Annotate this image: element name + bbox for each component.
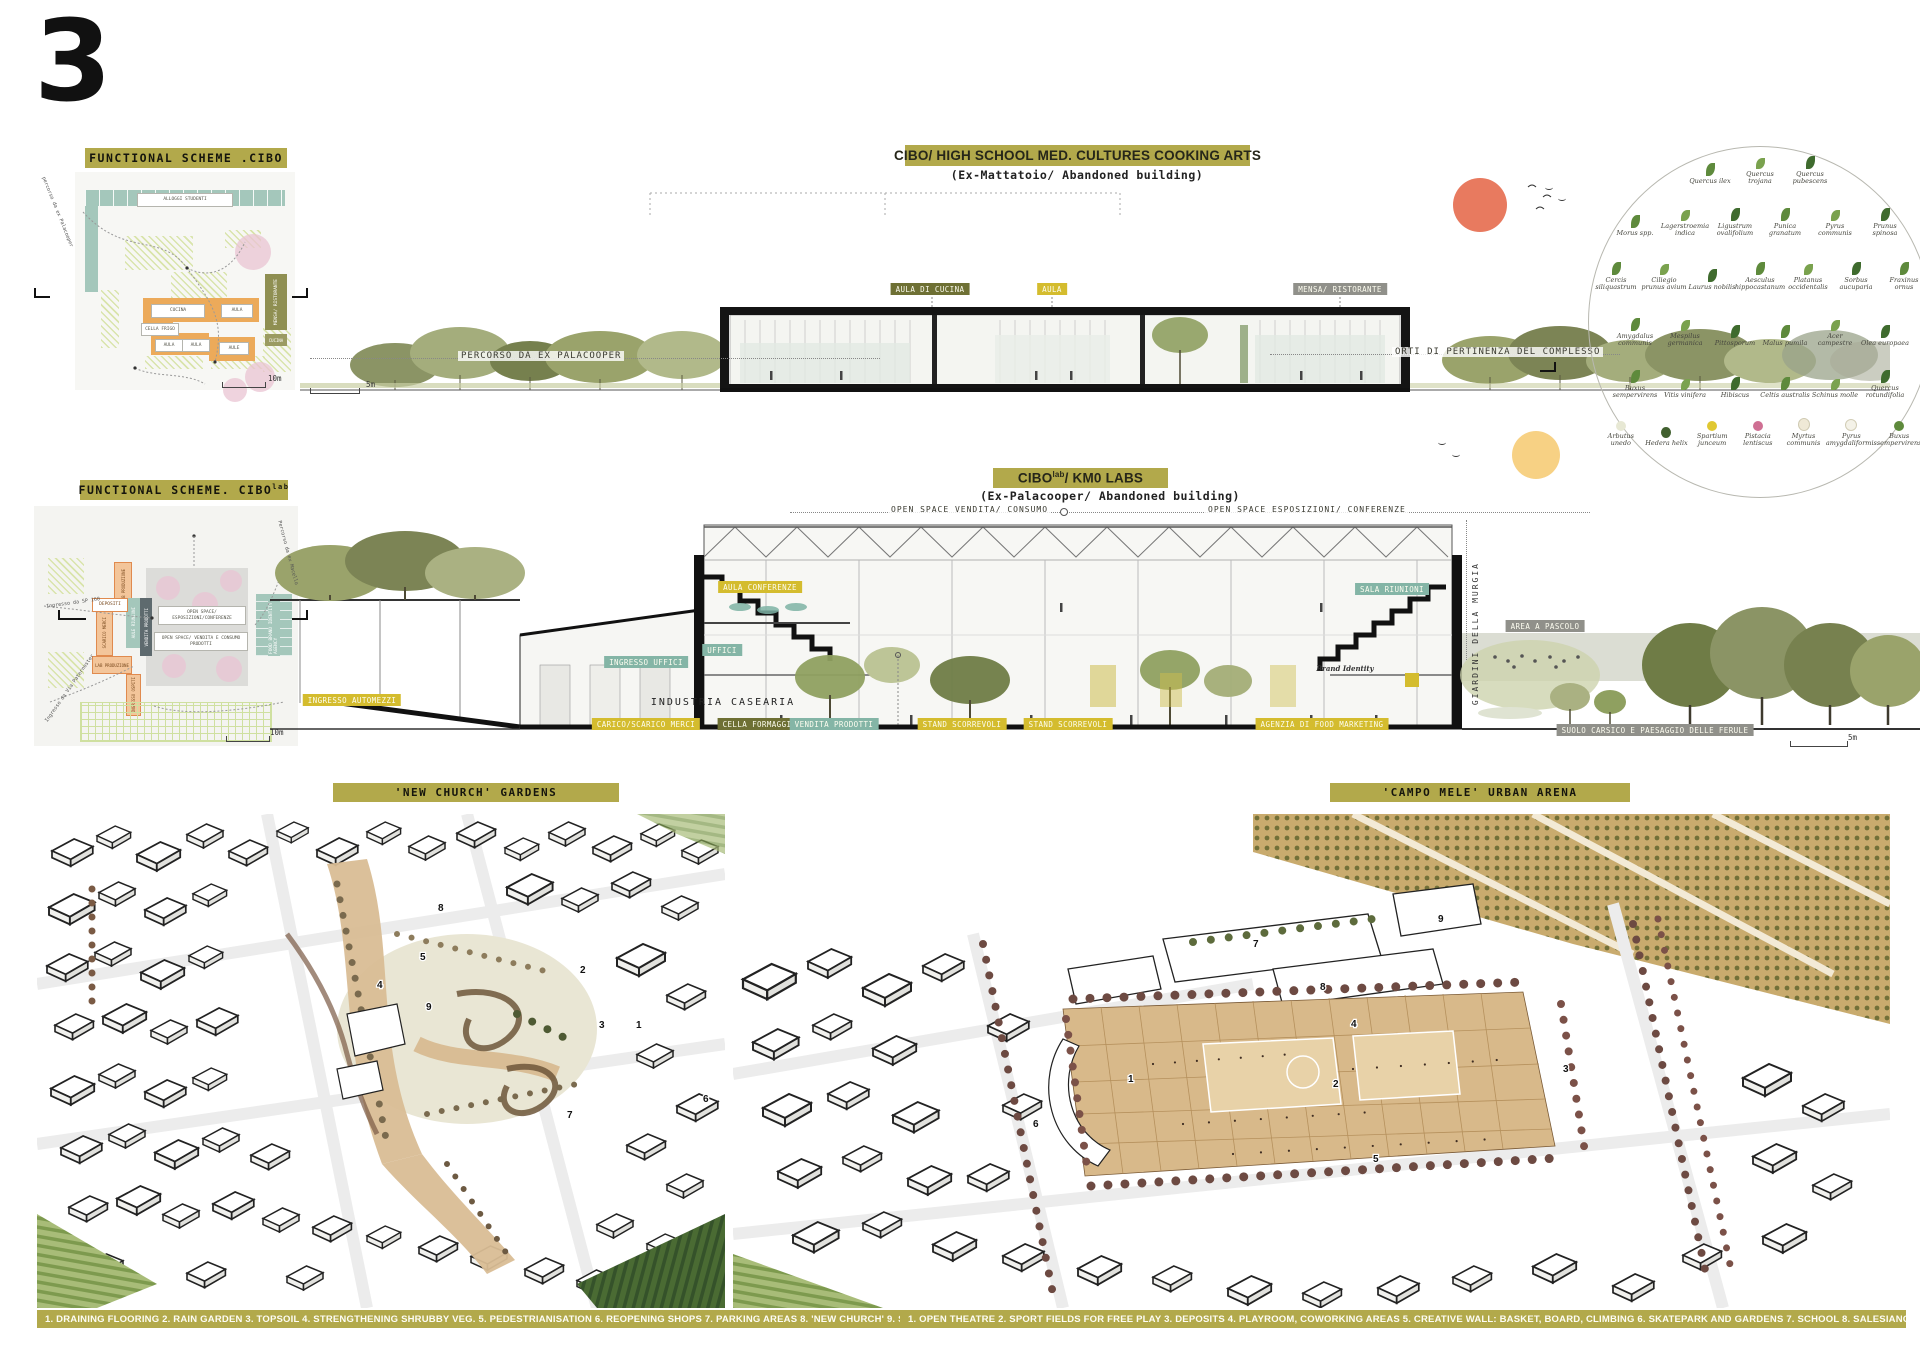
plant-item: Celtis australis [1760,377,1810,399]
flower-icon [1753,421,1763,431]
leaf-icon [1631,215,1640,228]
svg-text:3: 3 [599,1020,605,1031]
plant-item: Spartium junceum [1689,421,1735,448]
tag-agenzia-food-marketing: AGENZIA DI FOOD MARKETING [1256,718,1389,730]
ground-text-left: PERCORSO DA EX PALACOOPER [458,351,624,361]
leaf-icon [1756,158,1765,169]
murgia-dotted-line [1466,520,1467,660]
tag-mensa-ristorante: MENSA/ RISTORANTE [1293,283,1387,295]
svg-text:9: 9 [1438,914,1444,925]
plant-row-3: Cercis siliquastrum Ciliegio prunus aviu… [1588,262,1920,292]
brand-identity-text: Brand Identity [1316,664,1373,673]
axon-new-church: 8 5 2 9 3 1 4 6 7 [37,814,725,1308]
plant-row-4: Amygdalus communis Mespilus germanica Pi… [1588,318,1920,348]
scheme-cibolab-plan: OPEN SPACE/ ESPOSIZIONI/CONFERENZE OPEN … [34,506,298,746]
plant-item: Pistacia lentiscus [1735,421,1781,448]
section-cibo-title-bar: CIBO/ HIGH SCHOOL MED. CULTURES COOKING … [905,145,1250,166]
plant-item: Malus pumila [1760,325,1810,347]
tag-aula-conferenze: AULA CONFERENZE [718,581,802,593]
leaf-icon [1681,379,1690,390]
tag-suolo-carsico: SUOLO CARSICO E PAESAGGIO DELLE FERULE [1557,724,1754,736]
leaf-icon [1731,377,1740,390]
leaf-icon [1881,370,1890,383]
cella-frigo-label: CELLA FRIGO [141,323,179,336]
plant-row-2: Morus spp. Lagerstroemia indica Ligustru… [1588,208,1920,238]
leaf-icon [1781,208,1790,221]
plant-item: Laurus nobilis [1688,269,1736,291]
axon-right-title-bar: 'CAMPO MELE' URBAN ARENA [1330,783,1630,802]
svg-text:7: 7 [567,1110,573,1121]
open-space-right-label: OPEN SPACE ESPOSIZIONI/ CONFERENZE [1205,505,1409,514]
section-cibolab-title-bar: CIBOlab/ KM0 LABS [993,468,1168,488]
tag-area-pascolo: AREA A PASCOLO [1506,620,1585,632]
leaf-icon [1660,264,1669,275]
leaf-icon [1731,208,1740,221]
scheme-cibo-title-bar: FUNCTIONAL SCHEME .CIBO [85,148,287,168]
tag-uffici: UFFICI [702,644,742,656]
scale-bar [310,388,360,394]
flower-icon [1894,421,1904,431]
leaf-icon [1756,262,1765,275]
scale-bar [1790,741,1848,747]
svg-text:8: 8 [438,903,444,914]
plant-item: Amygdalus communis [1610,318,1660,348]
crop-mark [34,288,50,298]
aula-label: AULA [155,339,183,352]
axon-campo-mele: 9 8 4 7 2 3 1 5 6 [733,814,1890,1308]
tag-vendita-prodotti: VENDITA PRODOTTI [790,718,879,730]
scheme-cibo-title: FUNCTIONAL SCHEME .CIBO [89,151,283,165]
plant-item: Quercus ilex [1685,163,1735,185]
leaf-icon [1631,370,1640,383]
scale-text: 5m [366,380,375,389]
plant-row-1: Quercus ilex Quercus trojana Quercus pub… [1588,156,1920,186]
giardini-murgia-vertical-label: GIARDINI DELLA MURGIA [1471,562,1480,705]
svg-text:2: 2 [1333,1079,1339,1090]
scale-text: 5m [1848,733,1857,742]
leaf-icon [1781,377,1790,390]
plant-item: Buxus sempervirens [1610,370,1660,400]
plant-item: Pyrus amygdaliformis [1826,419,1876,448]
bird-mark [1545,185,1553,190]
svg-text:4: 4 [377,980,383,991]
plant-item: Hibiscus [1710,377,1760,399]
svg-text:5: 5 [1373,1154,1379,1165]
leaf-icon [1706,163,1715,176]
plant-item: Quercus rotundifolia [1860,370,1910,400]
leaf-icon [1900,262,1909,275]
tag-stand-scorrevoli-2: STAND SCORREVOLI [1024,718,1113,730]
plant-item: Buxus sempervirens [1876,421,1920,448]
leaf-icon [1881,325,1890,338]
leaf-icon [1831,379,1840,390]
plant-item: Quercus pubescens [1785,156,1835,186]
leaf-icon [1612,262,1621,275]
svg-text:6: 6 [1033,1119,1039,1130]
open-space-left-label: OPEN SPACE VENDITA/ CONSUMO [888,505,1051,514]
leaf-icon [1681,210,1690,221]
plant-item: Mespilus germanica [1660,320,1710,348]
presentation-board: 3 FUNCTIONAL SCHEME .CIBO ALLOGGI STUDEN… [0,0,1920,1356]
circulation-paths [34,506,298,746]
crop-mark [292,610,308,620]
crop-mark [1540,362,1556,372]
axon-left-title-bar: 'NEW CHURCH' GARDENS [333,783,619,802]
scale-bar [222,382,266,388]
plant-item: Fraxinus ornus [1880,262,1920,292]
leaf-icon [1806,156,1815,169]
tag-ingresso-uffici: INGRESSO UFFICI [604,656,688,668]
plant-item: Vitis vinifera [1660,379,1710,399]
svg-text:7: 7 [1253,939,1259,950]
bird-mark [1452,452,1460,457]
functional-scheme-cibo: FUNCTIONAL SCHEME .CIBO ALLOGGI STUDENTI… [40,140,300,398]
leaf-icon [1631,318,1640,331]
leaf-icon [1831,320,1840,331]
svg-text:4: 4 [1351,1019,1357,1030]
aula-label: AULA [221,304,253,318]
leaf-icon [1804,264,1813,275]
page-number: 3 [34,6,112,118]
svg-text:6: 6 [703,1094,709,1105]
leaf-icon [1852,262,1861,275]
scheme-cibolab-title: FUNCTIONAL SCHEME. CIBOlab [79,483,290,497]
tag-stand-scorrevoli-1: STAND SCORREVOLI [918,718,1007,730]
alloggi-label: ALLOGGI STUDENTI [137,193,233,207]
scale-bar [226,736,270,742]
svg-text:5: 5 [420,952,426,963]
axon-left-legend: 1. DRAINING FLOORING 2. RAIN GARDEN 3. T… [37,1310,909,1328]
tag-cella-formaggi: CELLA FORMAGGI [718,718,797,730]
plant-item: Schinus molle [1810,379,1860,399]
functional-scheme-cibolab: FUNCTIONAL SCHEME. CIBOlab OPEN SPACE/ E… [30,470,302,755]
svg-text:3: 3 [1563,1064,1569,1075]
plant-row-5: Buxus sempervirens Vitis vinifera Hibisc… [1588,370,1920,400]
scheme-cibo-plan: ALLOGGI STUDENTI CUCINA AULA CELLA FRIGO… [75,172,295,390]
scheme-cibolab-title-bar: FUNCTIONAL SCHEME. CIBOlab [80,480,288,500]
tag-sala-riunioni: SALA RIUNIONI [1355,583,1429,595]
flower-icon [1845,419,1857,431]
svg-text:1: 1 [636,1020,642,1031]
plant-item: Quercus trojana [1735,158,1785,186]
ground-text-right: ORTI DI PERTINENZA DEL COMPLESSO [1392,347,1603,357]
plant-item: Prunus spinosa [1860,208,1910,238]
svg-text:9: 9 [426,1002,432,1013]
flower-icon [1798,418,1810,431]
tag-aula: AULA [1037,283,1067,295]
plant-item: Cercis siliquastrum [1592,262,1640,292]
plant-item: Olea europaea [1860,325,1910,347]
dot-marker [1060,508,1068,516]
plant-row-flowers: Arbutus unedo Hedera helix Spartium junc… [1588,418,1920,448]
svg-text:2: 2 [580,965,586,976]
svg-text:8: 8 [1320,982,1326,993]
plant-item: Platanus occidentalis [1784,264,1832,292]
crop-mark [292,288,308,298]
axon-right-legend: 1. OPEN THEATRE 2. SPORT FIELDS FOR FREE… [900,1310,1906,1328]
plant-item: Pittosporum [1710,325,1760,347]
aule-label: AULE [219,342,249,355]
leaf-icon [1831,210,1840,221]
open-space-vendita-label: OPEN SPACE/ VENDITA E CONSUMO PRODOTTI [154,632,248,651]
bird-mark [1438,440,1446,445]
plant-item: Ciliegio prunus avium [1640,264,1688,292]
plant-item: Sorbus aucuparia [1832,262,1880,292]
leaf-icon [1781,325,1790,338]
plant-item: Acer campestre [1810,320,1860,348]
section-cibo-title: CIBO/ HIGH SCHOOL MED. CULTURES COOKING … [894,148,1261,163]
tag-ingresso-automezzi: INGRESSO AUTOMEZZI [303,694,401,706]
plant-item: Punica granatum [1760,208,1810,238]
flower-icon [1616,421,1626,431]
leaf-icon [1881,208,1890,221]
path-label-rotated: percorso da ex Palacooper [40,176,74,248]
industria-casearia-text: INDUSTRIA CASEARIA [651,697,795,708]
cucina-label: CUCINA [151,304,205,318]
sp160-bracket [58,610,86,620]
plant-palette-circle: Quercus ilex Quercus trojana Quercus pub… [1588,146,1920,498]
leaf-icon [1681,320,1690,331]
axon-right-title: 'CAMPO MELE' URBAN ARENA [1383,786,1578,799]
axon-left-title: 'NEW CHURCH' GARDENS [395,786,557,799]
sun-circle-yellow [1512,431,1560,479]
plant-item: Ligustrum ovalifolium [1710,208,1760,238]
plant-item: Pyrus communis [1810,210,1860,238]
flower-icon [1661,427,1671,438]
tag-aula-di-cucina: AULA DI CUCINA [891,283,970,295]
bird-mark [1558,196,1566,201]
svg-text:1: 1 [1128,1074,1134,1085]
tag-carico-scarico: CARICO/SCARICO MERCI [592,718,700,730]
plant-item: Hedera helix [1644,427,1690,447]
open-space-espo-label: OPEN SPACE/ ESPOSIZIONI/CONFERENZE [158,606,246,625]
plant-item: Arbutus unedo [1598,421,1644,448]
leaf-icon [1708,269,1717,282]
plant-item: Aesculus hippocastanum [1736,262,1784,292]
flower-icon [1707,421,1717,431]
section-cibolab-subtitle: (Ex-Palacooper/ Abandoned building) [980,489,1240,503]
leaf-icon [1731,325,1740,338]
aula-label: AULA [182,339,210,352]
scale-text: 10m [268,374,282,383]
section-cibolab-title: CIBOlab/ KM0 LABS [1018,470,1143,486]
plant-item: Morus spp. [1610,215,1660,237]
plant-item: Myrtus communis [1781,418,1827,448]
section-cibo-subtitle: (Ex-Mattatoio/ Abandoned building) [951,168,1203,182]
scale-text: 10m [270,728,284,737]
plant-item: Lagerstroemia indica [1660,210,1710,238]
